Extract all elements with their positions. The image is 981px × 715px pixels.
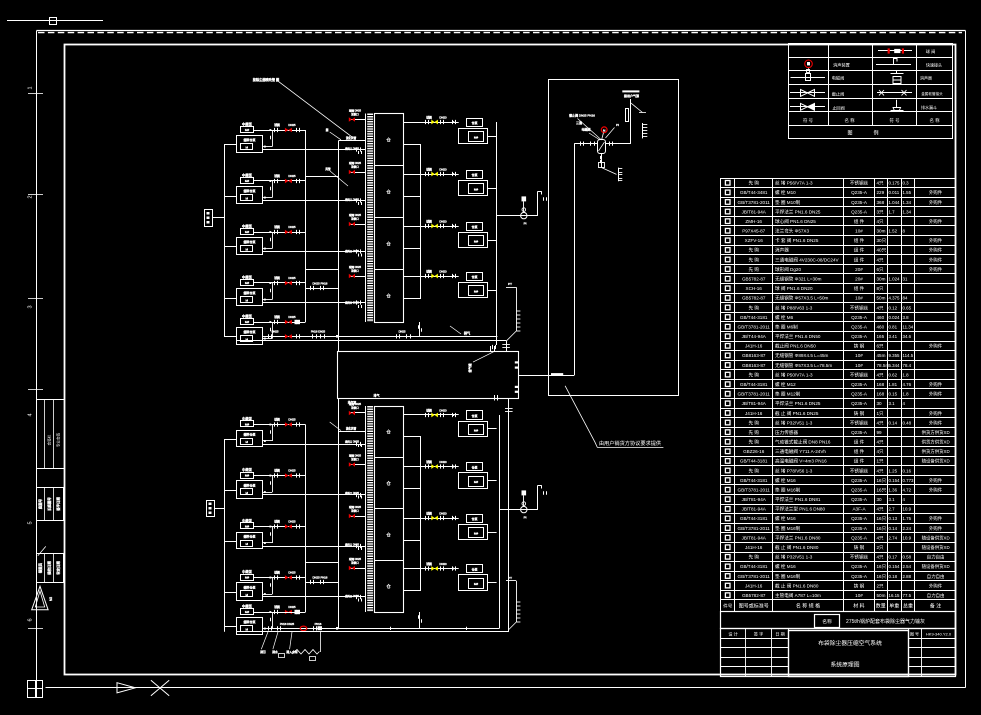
svg-text:组 件: 组 件 [854,285,865,292]
svg-text:由用户销货方协议要求提供: 由用户销货方协议要求提供 [599,439,661,447]
svg-text:名称: 名称 [822,618,832,625]
svg-text:XCH-16: XCH-16 [746,286,763,291]
svg-text:球阀: 球阀 [274,225,280,229]
svg-text:84: 84 [903,296,908,301]
svg-text:仓泵: 仓泵 [471,224,477,229]
svg-text:DN25: DN25 [288,225,296,229]
svg-text:螺 栓 M12: 螺 栓 M12 [775,381,796,388]
svg-text:球阀: 球阀 [274,174,280,178]
svg-text:Q235-A: Q235-A [851,200,868,205]
svg-text:M#: M# [474,532,478,536]
svg-text:M#: M# [474,188,478,192]
svg-text:球阀 DN25: 球阀 DN25 [349,557,362,561]
svg-text:排水: 排水 [272,650,278,654]
svg-text:Q235-A: Q235-A [851,430,868,435]
svg-text:自力自由: 自力自由 [927,554,945,561]
svg-text:M#: M# [245,610,249,614]
svg-text:进料口 DN25: 进料口 DN25 [345,197,360,201]
svg-text:0.18: 0.18 [889,574,898,579]
svg-text:仓: 仓 [386,532,391,539]
svg-text:GB/T3781-2011: GB/T3781-2011 [738,487,771,492]
svg-text:组 件: 组 件 [854,247,865,254]
svg-text:无缝钢管 Φ89X4.5 L=45m: 无缝钢管 Φ89X4.5 L=45m [775,352,828,359]
svg-text:平焊法兰 PN1.6 DN50: 平焊法兰 PN1.6 DN50 [775,333,821,340]
svg-text:0.65: 0.65 [903,305,912,310]
svg-text:垫 圈 M12制: 垫 圈 M12制 [775,391,801,398]
svg-text:平焊法兰 PN1.6 DN25: 平焊法兰 PN1.6 DN25 [775,400,821,407]
svg-text:风管: 风管 [325,167,331,171]
svg-text:供货方供货XD: 供货方供货XD [922,439,950,446]
svg-text:16.15: 16.15 [889,593,901,598]
svg-text:JB/T44-94A: JB/T44-94A [742,334,767,339]
svg-text:GB/T44-3181: GB/T44-3181 [740,516,768,521]
svg-text:1.25: 1.25 [889,468,898,473]
svg-text:设 计: 设 计 [728,631,738,638]
svg-text:10#: 10# [855,229,863,234]
svg-text:球阀: 球阀 [426,562,432,566]
svg-text:签字日期: 签字日期 [56,497,61,511]
svg-text:先 购: 先 购 [748,256,759,263]
svg-text:不锈钢丝: 不锈钢丝 [850,554,869,561]
svg-text:6: 6 [28,618,34,621]
svg-text:法兰弯头 Φ57X3: 法兰弯头 Φ57X3 [775,228,809,235]
svg-text:仓泵: 仓泵 [471,172,477,177]
svg-text:Q235-A: Q235-A [851,526,868,531]
svg-text:A3F-A: A3F-A [852,507,866,512]
svg-text:无缝钢管 Φ57X3.5 L=78.5m: 无缝钢管 Φ57X3.5 L=78.5m [775,362,832,369]
svg-text:球阀: 球阀 [426,270,432,274]
svg-text:外购件: 外购件 [929,343,943,350]
svg-text:4.72: 4.72 [903,487,912,492]
svg-text:10.9: 10.9 [903,507,912,512]
svg-text:垫 圈 M6制: 垫 圈 M6制 [775,323,798,330]
svg-text:垫 圈 M10制: 垫 圈 M10制 [775,199,801,206]
svg-text:组 件: 组 件 [854,218,865,225]
svg-text:0.17: 0.17 [889,555,898,560]
svg-text:0.12: 0.12 [889,305,898,310]
svg-text:不锈钢丝: 不锈钢丝 [850,304,869,311]
svg-text:Q235-A: Q235-A [851,401,868,406]
svg-text:275t/h锅炉配套布袋除尘器气力输灰: 275t/h锅炉配套布袋除尘器气力输灰 [846,618,925,625]
svg-text:Q235-A: Q235-A [851,315,868,320]
svg-text:PN16: PN16 [315,622,322,626]
svg-text:排气: 排气 [464,331,471,336]
svg-text:M#: M# [245,576,249,580]
svg-text:0.48: 0.48 [903,420,912,425]
svg-text:中继泵: 中继泵 [242,122,253,127]
svg-text:仓泵: 仓泵 [471,274,477,279]
svg-text:外购件: 外购件 [929,381,943,388]
svg-text:铸 钢: 铸 钢 [854,544,865,551]
svg-text:放散口: 放散口 [351,560,359,564]
svg-text:中继泵: 中继泵 [242,224,253,229]
svg-text:中继泵: 中继泵 [242,173,253,178]
svg-text:例: 例 [873,130,878,137]
svg-text:2.7: 2.7 [889,507,896,512]
svg-text:30: 30 [877,401,883,406]
svg-text:先 购: 先 购 [748,467,759,474]
svg-text:中继泵: 中继泵 [242,569,253,574]
svg-text:放散口: 放散口 [351,457,359,461]
svg-text:M#: M# [245,474,249,478]
svg-text:DN20: DN20 [439,270,447,274]
svg-text:丝 堵 P56/V7A 1-3: 丝 堵 P56/V7A 1-3 [775,180,813,187]
svg-text:Q235-A: Q235-A [851,487,868,492]
svg-text:不锈钢丝: 不锈钢丝 [850,419,869,426]
svg-text:4.375: 4.375 [889,296,901,301]
svg-text:球阀: 球阀 [274,123,280,127]
svg-text:Q235-A: Q235-A [851,209,868,214]
svg-text:进料口 DN25: 进料口 DN25 [345,594,360,598]
svg-text:压力传感器: 压力传感器 [775,429,798,436]
svg-text:三通电磁阀 4V230C-08/DC24V: 三通电磁阀 4V230C-08/DC24V [775,256,840,263]
svg-text:GB/T44-3181: GB/T44-3181 [740,459,768,464]
svg-text:排污: 排污 [260,650,266,654]
svg-text:垫 圈 M16制: 垫 圈 M16制 [775,486,801,493]
svg-text:Q235-A: Q235-A [851,324,868,329]
svg-text:仓泵: 仓泵 [471,413,477,418]
svg-text:DN20: DN20 [439,512,447,516]
svg-text:球阀 DN25: 球阀 DN25 [349,108,362,112]
svg-text:20#: 20# [855,267,863,272]
svg-text:仓泵: 仓泵 [471,516,477,521]
svg-text:球阀 DN25: 球阀 DN25 [349,265,362,269]
svg-text:1.024: 1.024 [889,277,901,282]
svg-text:数量: 数量 [876,603,886,610]
svg-text:丝 堵 P88/V63 1-3: 丝 堵 P88/V63 1-3 [775,304,813,311]
svg-text:3: 3 [28,305,34,308]
svg-text:接用户气源: 接用户气源 [624,93,639,98]
svg-text:Q235-A: Q235-A [851,574,868,579]
svg-text:不锈钢丝: 不锈钢丝 [850,180,869,187]
svg-text:45m: 45m [877,353,886,358]
svg-text:PT: PT [508,576,512,580]
svg-text:球阀: 球阀 [274,276,280,280]
svg-text:球阀: 球阀 [426,512,432,516]
svg-text:10#: 10# [855,296,863,301]
svg-text:1.75: 1.75 [903,516,912,521]
svg-text:GB/T44-3181: GB/T44-3181 [740,564,768,569]
svg-text:外购件: 外购件 [929,199,943,206]
svg-text:Q235-A: Q235-A [851,382,868,387]
svg-text:GB/T3781-2011: GB/T3781-2011 [738,574,771,579]
svg-text:PN16 DN25: PN16 DN25 [311,330,326,334]
svg-text:电磁阀: 电磁阀 [832,75,845,82]
svg-text:组 件: 组 件 [854,458,865,465]
svg-text:垫 圈 M16制: 垫 圈 M16制 [775,525,801,532]
svg-text:球阀: 球阀 [274,469,280,473]
svg-text:消声器: 消声器 [775,247,789,254]
svg-text:球阀: 球阀 [274,571,280,575]
svg-text:4: 4 [28,413,34,416]
svg-text:0.62: 0.62 [889,372,898,377]
svg-text:5.344: 5.344 [889,363,901,368]
svg-text:78.5m: 78.5m [877,363,890,368]
svg-text:DN25: DN25 [288,418,296,422]
svg-text:放散口: 放散口 [351,405,359,409]
svg-text:2.54: 2.54 [903,564,912,569]
svg-text:368: 368 [877,200,885,205]
svg-text:球阀 DN25: 球阀 DN25 [349,213,362,217]
svg-text:储料仓泵: 储料仓泵 [243,585,255,590]
svg-text:Q235-A: Q235-A [851,392,868,397]
svg-text:50m: 50m [877,296,886,301]
svg-text:螺 栓 M16: 螺 栓 M16 [775,515,796,522]
svg-text:M#: M# [474,136,478,140]
svg-text:165: 165 [877,334,885,339]
svg-text:先 购: 先 购 [748,554,759,561]
svg-text:1.8: 1.8 [903,392,910,397]
svg-text:M: M [603,128,605,132]
svg-text:放散口: 放散口 [351,508,359,512]
svg-text:10.9: 10.9 [903,535,912,540]
svg-text:M#: M# [474,582,478,586]
svg-text:仓: 仓 [386,136,391,143]
svg-text:主管电阀 A787 L=10m: 主管电阀 A787 L=10m [775,592,821,599]
svg-text:不锈钢丝: 不锈钢丝 [850,467,869,474]
svg-text:DN20: DN20 [439,168,447,172]
svg-text:丝 堵 P32/V51 1-3: 丝 堵 P32/V51 1-3 [775,419,813,426]
svg-text:DN25: DN25 [288,469,296,473]
svg-text:DN25: DN25 [288,520,296,524]
svg-text:99: 99 [877,430,883,435]
svg-text:PI: PI [524,516,527,520]
svg-text:进料口 DN25: 进料口 DN25 [345,146,360,150]
svg-text:N3: N3 [49,597,53,601]
svg-text:M#: M# [474,290,478,294]
svg-text:外购件: 外购件 [929,410,943,417]
svg-text:PN16 DN25: PN16 DN25 [280,622,295,626]
svg-text:M#: M# [245,128,249,132]
svg-text:Q235-A: Q235-A [851,516,868,521]
svg-text:不锈钢丝: 不锈钢丝 [850,371,869,378]
svg-text:M#: M# [245,179,249,183]
svg-text:3.1: 3.1 [889,401,896,406]
svg-text:会签栏: 会签栏 [46,434,51,445]
svg-text:1: 1 [28,86,34,89]
svg-text:M#: M# [474,240,478,244]
svg-text:先 购: 先 购 [748,371,759,378]
svg-text:旧底图号: 旧底图号 [46,497,51,511]
svg-text:球阀 DN25: 球阀 DN25 [349,161,362,165]
svg-text:3.1: 3.1 [889,497,896,502]
svg-text:JB/T81-94A: JB/T81-94A [742,535,767,540]
svg-text:仓泵: 仓泵 [471,567,477,572]
svg-text:平焊法兰 PN1.6 DN25: 平焊法兰 PN1.6 DN25 [775,208,821,215]
svg-text:0.14: 0.14 [889,420,898,425]
svg-text:0.154: 0.154 [889,478,901,483]
svg-text:1.34: 1.34 [903,209,912,214]
svg-text:DN25: DN25 [288,605,296,609]
svg-text:仓: 仓 [386,241,391,248]
svg-text:符 号: 符 号 [803,117,814,124]
svg-text:J41H-16: J41H-16 [745,583,763,588]
svg-text:储料仓泵: 储料仓泵 [243,137,255,142]
svg-text:0.16: 0.16 [903,468,912,473]
svg-text:外购件: 外购件 [929,391,943,398]
svg-text:球阀: 球阀 [426,460,432,464]
svg-text:仓: 仓 [386,189,391,196]
svg-text:球 阀: 球 阀 [926,48,936,55]
svg-text:流化风管: 流化风管 [346,427,357,431]
svg-text:0.13: 0.13 [889,516,898,521]
svg-text:中继泵: 中继泵 [242,314,253,319]
svg-text:外购件: 外购件 [929,525,943,532]
svg-text:0.011: 0.011 [889,190,900,195]
svg-text:进料口 DN25: 进料口 DN25 [345,249,360,253]
svg-text:螺 栓 M16: 螺 栓 M16 [775,563,796,570]
svg-text:球阀: 球阀 [426,168,432,172]
svg-text:阀: 阀 [326,128,329,132]
svg-text:XZFV-16: XZFV-16 [745,238,764,243]
svg-text:螺 栓 M6: 螺 栓 M6 [775,314,794,321]
svg-text:先 购: 先 购 [748,247,759,254]
svg-text:丝 堵 P78/V56 1-3: 丝 堵 P78/V56 1-3 [775,467,813,474]
svg-text:GB/T3781-2011: GB/T3781-2011 [738,392,771,397]
svg-text:10#: 10# [855,353,863,358]
svg-text:1.81: 1.81 [889,382,898,387]
svg-text:进料口 DN25: 进料口 DN25 [345,542,360,546]
svg-text:气动锥式截止阀 DN8 PN16: 气动锥式截止阀 DN8 PN16 [775,439,831,446]
svg-text:排水漏斗: 排水漏斗 [921,104,937,110]
svg-text:1.55: 1.55 [903,190,912,195]
svg-text:平焊法兰 PN1.6 DN81: 平焊法兰 PN1.6 DN81 [775,496,821,503]
svg-text:备 注: 备 注 [930,603,941,610]
svg-text:30m: 30m [877,277,886,282]
svg-text:仓泵: 仓泵 [471,465,477,470]
svg-text:名 称 规 格: 名 称 规 格 [796,603,820,610]
svg-text:DN25: DN25 [288,123,296,127]
svg-text:1.7: 1.7 [889,209,896,214]
svg-text:先 购: 先 购 [748,266,759,273]
svg-text:三通电磁阀 Y711 A-24Vh: 三通电磁阀 Y711 A-24Vh [775,448,826,455]
svg-text:PI: PI [524,222,527,226]
svg-text:自力自由: 自力自由 [927,592,945,599]
svg-text:描图员: 描图员 [38,562,43,573]
svg-text:名 称: 名 称 [929,117,940,124]
svg-text:组 件: 组 件 [854,256,865,263]
svg-text:储料仓泵: 储料仓泵 [243,239,255,244]
svg-text:材 料: 材 料 [853,603,864,610]
svg-text:Q235-A: Q235-A [851,334,868,339]
svg-text:无缝钢管 Φ57X3.5 L=50m: 无缝钢管 Φ57X3.5 L=50m [775,295,828,302]
svg-text:PI: PI [616,123,619,127]
svg-text:DN25 PN16: DN25 PN16 [313,576,328,580]
svg-text:供货方供货XD: 供货方供货XD [922,448,950,455]
svg-text:GB5782-87: GB5782-87 [742,593,766,598]
svg-text:球阀: 球阀 [274,418,280,422]
svg-text:JB/T81-94A: JB/T81-94A [742,209,767,214]
svg-text:外购件: 外购件 [929,189,943,196]
svg-text:GB/T44-3181: GB/T44-3181 [740,382,768,387]
svg-text:2.88: 2.88 [903,574,912,579]
svg-text:GB/T44-3181: GB/T44-3181 [740,315,768,320]
svg-text:球形阀 Dg20: 球形阀 Dg20 [775,266,801,273]
svg-text:0.15: 0.15 [889,392,898,397]
svg-text:截 止 阀 PN1.6 DN80: 截 止 阀 PN1.6 DN80 [775,544,819,551]
svg-text:图 号: 图 号 [910,631,919,637]
svg-text:先 购: 先 购 [748,180,759,187]
svg-text:4.76: 4.76 [903,382,912,387]
svg-text:排气管: 排气管 [348,401,357,405]
svg-text:螺 栓 M16: 螺 栓 M16 [775,477,796,484]
svg-text:460: 460 [877,315,885,320]
svg-text:9.355: 9.355 [889,353,901,358]
svg-text:0.81: 0.81 [889,324,898,329]
svg-text:储料仓泵: 储料仓泵 [243,534,255,539]
svg-text:随设备供货XD: 随设备供货XD [922,544,950,551]
svg-text:储料仓泵: 储料仓泵 [243,619,255,624]
svg-text:229: 229 [877,190,885,195]
svg-text:消声器: 消声器 [920,74,932,80]
svg-text:中继泵: 中继泵 [242,604,253,609]
svg-text:球阀 DN25: 球阀 DN25 [349,505,362,509]
svg-text:0.58: 0.58 [903,555,912,560]
svg-text:2: 2 [28,195,34,198]
svg-text:描校日期: 描校日期 [46,561,51,575]
svg-text:储料仓泵: 储料仓泵 [243,290,255,295]
svg-text:外购件: 外购件 [929,218,943,225]
svg-text:签 字: 签 字 [754,631,764,637]
svg-text:外购件: 外购件 [929,266,943,273]
svg-text:随设备供货XD: 随设备供货XD [922,563,950,570]
svg-text:三通: 三通 [576,120,582,125]
svg-text:仓: 仓 [386,429,391,436]
svg-text:截 止 阀 PN1.6 DN80: 截 止 阀 PN1.6 DN80 [775,582,819,589]
svg-text:铸 钢: 铸 钢 [854,343,865,350]
svg-text:1.8: 1.8 [903,372,910,377]
svg-text:止回阀: 止回阀 [832,104,845,111]
svg-text:球阀: 球阀 [426,220,432,224]
svg-text:GB/T44-3181: GB/T44-3181 [740,478,768,483]
svg-text:GB/T3781-2011: GB/T3781-2011 [738,324,771,329]
svg-text:储料仓泵: 储料仓泵 [243,329,255,334]
svg-text:仓: 仓 [386,583,391,590]
svg-text:截止阀 DN25 PN16: 截止阀 DN25 PN16 [569,113,595,118]
svg-text:审定日期: 审定日期 [56,561,61,575]
svg-text:进料口 DN25: 进料口 DN25 [345,300,360,304]
svg-text:0.024: 0.024 [889,315,901,320]
svg-text:168: 168 [877,382,885,387]
svg-text:铸 钢: 铸 钢 [854,410,865,417]
svg-text:电磁阀: 电磁阀 [581,127,590,132]
svg-text:1.044: 1.044 [889,200,901,205]
svg-text:34.6: 34.6 [903,334,912,339]
svg-text:接除尘器喷吹管 图: 接除尘器喷吹管 图 [253,77,279,82]
svg-text:Q235-A: Q235-A [851,564,868,569]
svg-text:J41H-16: J41H-16 [745,545,763,550]
svg-text:ZMH-16: ZMH-16 [745,219,762,224]
svg-text:GB5782-87: GB5782-87 [742,277,766,282]
svg-text:114.5: 114.5 [903,353,914,358]
svg-text:平焊法兰型 PN1.6 DN80: 平焊法兰型 PN1.6 DN80 [775,506,825,513]
svg-text:储料仓泵: 储料仓泵 [243,483,255,488]
svg-text:HK9-340.Y2.0: HK9-340.Y2.0 [926,632,952,637]
svg-text:JB/T81-94A: JB/T81-94A [742,497,767,502]
svg-text:DN25: DN25 [272,330,279,334]
svg-text:组 件: 组 件 [854,237,865,244]
svg-text:铸 钢: 铸 钢 [854,582,865,589]
svg-text:DN25: DN25 [399,330,406,334]
svg-text:77.5: 77.5 [903,593,912,598]
svg-text:0.773: 0.773 [903,478,915,483]
svg-text:0.175: 0.175 [889,181,901,186]
svg-text:30: 30 [877,497,883,502]
svg-text:截 止 阀 PN1.6 DN25: 截 止 阀 PN1.6 DN25 [775,410,819,417]
svg-text:丝 堵 P50/V7A 1-3: 丝 堵 P50/V7A 1-3 [775,371,813,378]
svg-text:先 购: 先 购 [748,419,759,426]
svg-text:30m: 30m [877,229,886,234]
